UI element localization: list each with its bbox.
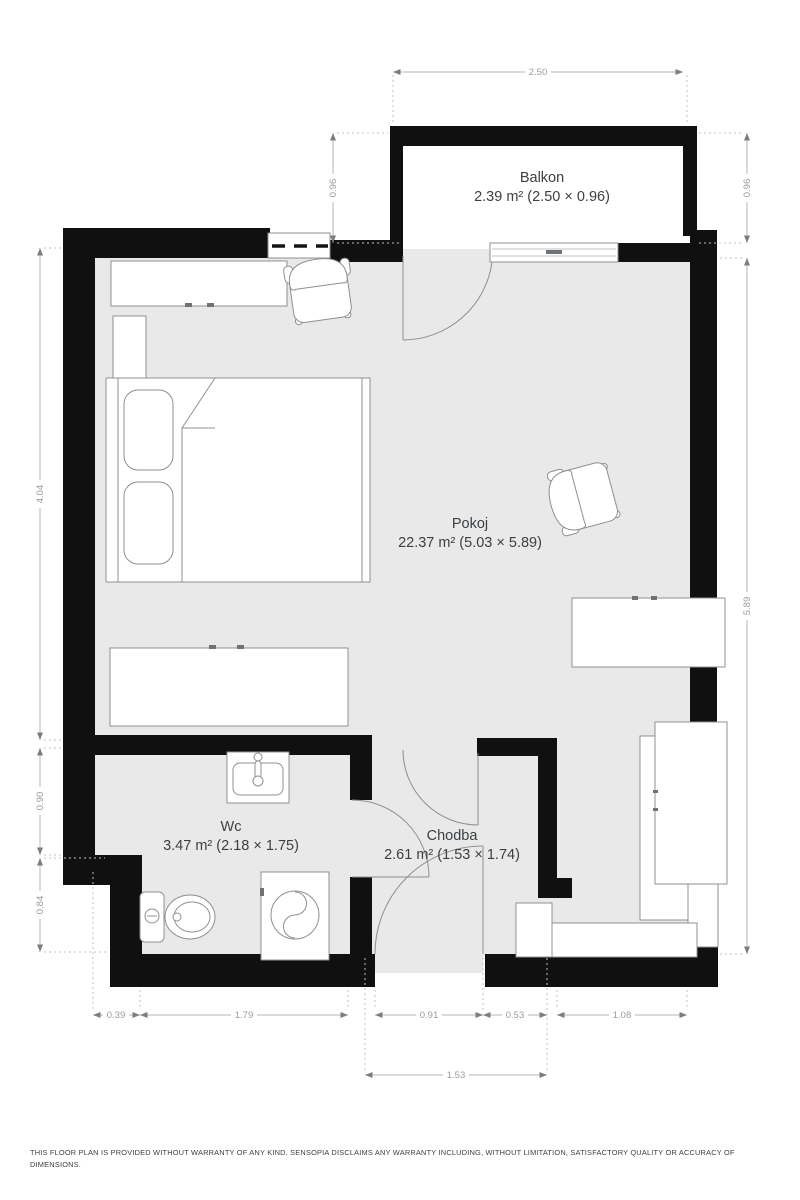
svg-text:1.08: 1.08 [613,1010,632,1021]
sink [227,752,289,803]
shoe-cabinet [516,903,552,957]
room-label-balkon: Balkon 2.39 m² (2.50 × 0.96) [474,170,610,205]
wall-balcony-right [683,126,697,236]
wall-left [63,228,95,857]
svg-text:1.79: 1.79 [235,1010,254,1021]
dim-top-width: 2.50 [393,66,683,78]
svg-text:Chodba: Chodba [427,828,479,844]
entrance-doorway-floor [375,954,483,973]
window-balcony [490,243,618,262]
dim-balcony-right: 0.96 [741,133,753,243]
sideboard [111,261,287,306]
wall-balcony-bottom-right [618,243,693,262]
window-top-left [268,233,330,258]
wardrobe-tall [655,722,727,884]
svg-text:0.96: 0.96 [328,179,339,198]
svg-text:4.04: 4.04 [35,485,46,504]
bed [106,378,370,582]
nightstand [113,316,146,380]
dim-left-upper: 4.04 [34,248,46,740]
svg-text:2.39 m² (2.50 × 0.96): 2.39 m² (2.50 × 0.96) [474,189,610,205]
svg-text:0.96: 0.96 [742,179,753,198]
disclaimer-line-2: DIMENSIONS. [30,1159,780,1171]
pillow [124,482,173,564]
svg-text:0.39: 0.39 [107,1010,126,1021]
svg-text:5.89: 5.89 [742,597,753,616]
svg-text:0.90: 0.90 [35,792,46,811]
floor-plan-canvas: 2.50 0.96 0.96 5.89 4.04 0.90 [0,0,800,1200]
wall-bottom-right [485,954,718,987]
dim-bottom-right: 1.08 [557,1009,687,1021]
dim-left-middle: 0.90 [34,748,46,855]
svg-text:Balkon: Balkon [520,170,564,186]
bench-dresser [110,648,348,726]
disclaimer-text: THIS FLOOR PLAN IS PROVIDED WITHOUT WARR… [30,1147,780,1171]
svg-text:Pokoj: Pokoj [452,516,488,532]
wall-left-step [63,855,142,885]
dim-bottom-wc: 1.79 [140,1009,348,1021]
dim-bottom-mid: 0.53 [483,1009,547,1021]
pillow [124,390,173,470]
svg-text:0.84: 0.84 [35,896,46,915]
wall-balcony-left [390,126,403,257]
svg-text:22.37 m² (5.03 × 5.89): 22.37 m² (5.03 × 5.89) [398,535,542,551]
svg-text:2.61 m² (1.53 × 1.74): 2.61 m² (1.53 × 1.74) [384,847,520,863]
toilet [140,892,215,942]
svg-text:1.53: 1.53 [447,1070,466,1081]
svg-text:0.91: 0.91 [420,1010,439,1021]
disclaimer-line-1: THIS FLOOR PLAN IS PROVIDED WITHOUT WARR… [30,1147,780,1159]
wall-hall-right [538,738,557,898]
svg-text:3.47 m² (2.18 × 1.75): 3.47 m² (2.18 × 1.75) [163,838,299,854]
washing-machine [260,872,329,960]
dim-balcony-left: 0.96 [327,133,339,243]
dim-bottom-entrance: 0.91 [375,1009,483,1021]
dim-bottom-hall: 1.53 [365,1069,547,1081]
desk [572,598,725,667]
wall-bottom-left [110,954,375,987]
svg-text:0.53: 0.53 [506,1010,525,1021]
dim-right-height: 5.89 [741,258,753,954]
svg-text:Wc: Wc [221,819,242,835]
cabinet-low [552,923,697,957]
floor-plan-page: 2.50 0.96 0.96 5.89 4.04 0.90 [0,0,800,1200]
wall-wc-right-upper [350,735,372,800]
wall-balcony-top [390,126,695,146]
dim-left-lower: 0.84 [34,858,46,952]
wall-top-left [63,228,270,258]
balcony-doorway-floor [403,249,490,259]
dim-bottom-offset: 0.39 [93,1009,140,1021]
wall-hall-corner [538,878,572,898]
svg-text:2.50: 2.50 [529,67,548,78]
